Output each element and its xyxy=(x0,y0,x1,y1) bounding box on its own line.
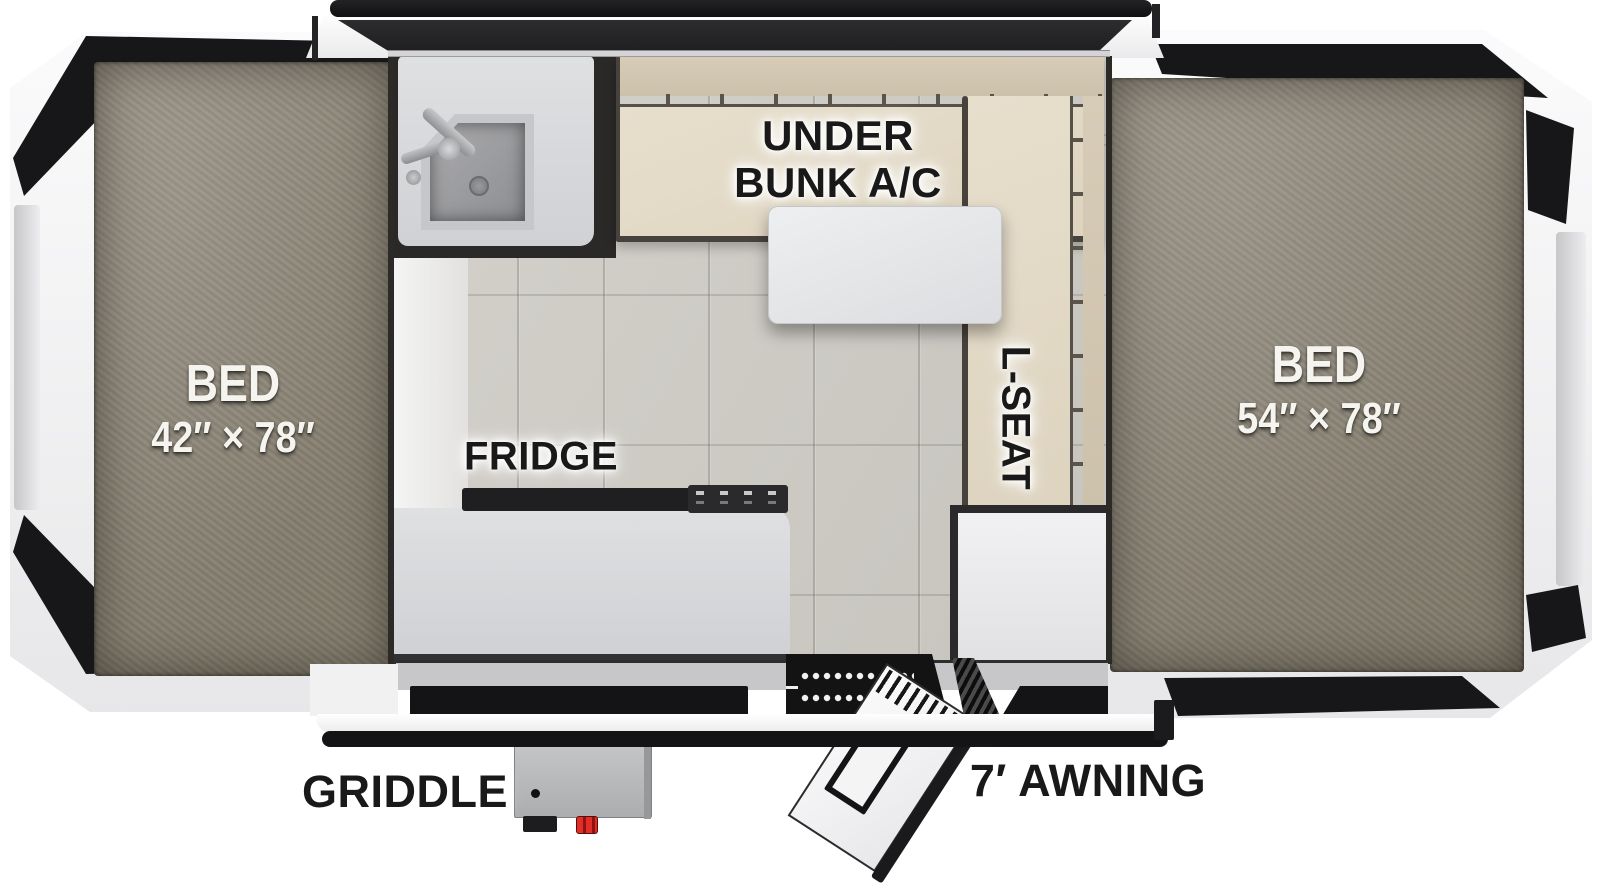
step-latch xyxy=(786,686,798,689)
bench-right-seam xyxy=(1070,96,1083,516)
dinette-table xyxy=(768,206,1002,324)
l-seat-label: L-SEAT xyxy=(993,346,1038,490)
body-corner-post-right xyxy=(1154,700,1174,740)
fridge-cabinet xyxy=(392,246,468,508)
kitchen-counter-surface xyxy=(392,508,790,654)
bottom-panel-left xyxy=(410,686,748,716)
under-bunk-ac-line1: UNDER xyxy=(734,112,942,159)
bed-right-label-line2: 54″ × 78″ xyxy=(1237,393,1401,445)
under-bunk-ac-line2: BUNK A/C xyxy=(734,159,942,206)
bottom-panel-right xyxy=(1002,686,1108,716)
bed-left-label-line1: BED xyxy=(151,356,315,412)
roof-latch-left xyxy=(312,16,318,60)
kitchen-counter xyxy=(392,488,790,664)
griddle-knob-icon xyxy=(531,789,540,798)
body-bottom-rail xyxy=(322,731,1168,747)
griddle-label: GRIDDLE xyxy=(302,766,508,818)
rear-cabinet-front xyxy=(958,513,1108,664)
interior-wall-right xyxy=(1106,56,1112,664)
faucet-icon xyxy=(398,100,494,196)
faucet-base xyxy=(438,138,460,160)
interior-floor: UNDER BUNK A/C L-SEAT FRIDGE xyxy=(392,54,1108,664)
griddle-unit xyxy=(514,740,654,834)
bench-top-left-edge xyxy=(616,56,620,242)
roof-latch-right xyxy=(1152,4,1160,38)
bed-left-label: BED 42″ × 78″ xyxy=(151,356,315,464)
griddle-box-shade xyxy=(644,745,651,819)
bench-top-backrest xyxy=(616,56,1104,96)
roof-dark-panel xyxy=(334,18,1136,54)
body-corner-left xyxy=(310,664,398,716)
rear-cabinet-top-edge xyxy=(950,505,1108,513)
rear-cabinet xyxy=(950,505,1108,664)
under-bunk-ac-label: UNDER BUNK A/C xyxy=(734,112,942,206)
stove xyxy=(688,485,788,513)
fridge-label: FRIDGE xyxy=(464,435,618,480)
bench-right-backrest xyxy=(1083,96,1104,516)
griddle-gas-valve xyxy=(576,816,598,834)
bed-right-rim-shade xyxy=(1556,232,1586,586)
rear-cabinet-left-edge xyxy=(950,505,958,664)
bed-left-rim-shade xyxy=(14,205,40,510)
bed-left-label-line2: 42″ × 78″ xyxy=(151,412,315,464)
interior-wall-left xyxy=(388,56,394,664)
interior-roofline xyxy=(388,50,1110,57)
faucet-knob xyxy=(406,170,421,185)
awning-label: 7′ AWNING xyxy=(970,755,1206,807)
stove-grate-lines xyxy=(696,501,780,504)
bed-right-label-line1: BED xyxy=(1237,337,1401,393)
bed-right-tent-end: BED 54″ × 78″ xyxy=(1104,24,1596,724)
floorplan-canvas: BED 42″ × 78″ BED 54″ × 78″ xyxy=(0,0,1600,889)
griddle-foot xyxy=(523,816,557,832)
bed-right-label: BED 54″ × 78″ xyxy=(1237,337,1401,445)
griddle-box xyxy=(514,744,652,818)
sink-counter xyxy=(398,56,594,246)
stove-knobs xyxy=(696,491,780,495)
roof-rail xyxy=(330,0,1152,17)
bed-left-tent-end: BED 42″ × 78″ xyxy=(8,28,396,716)
